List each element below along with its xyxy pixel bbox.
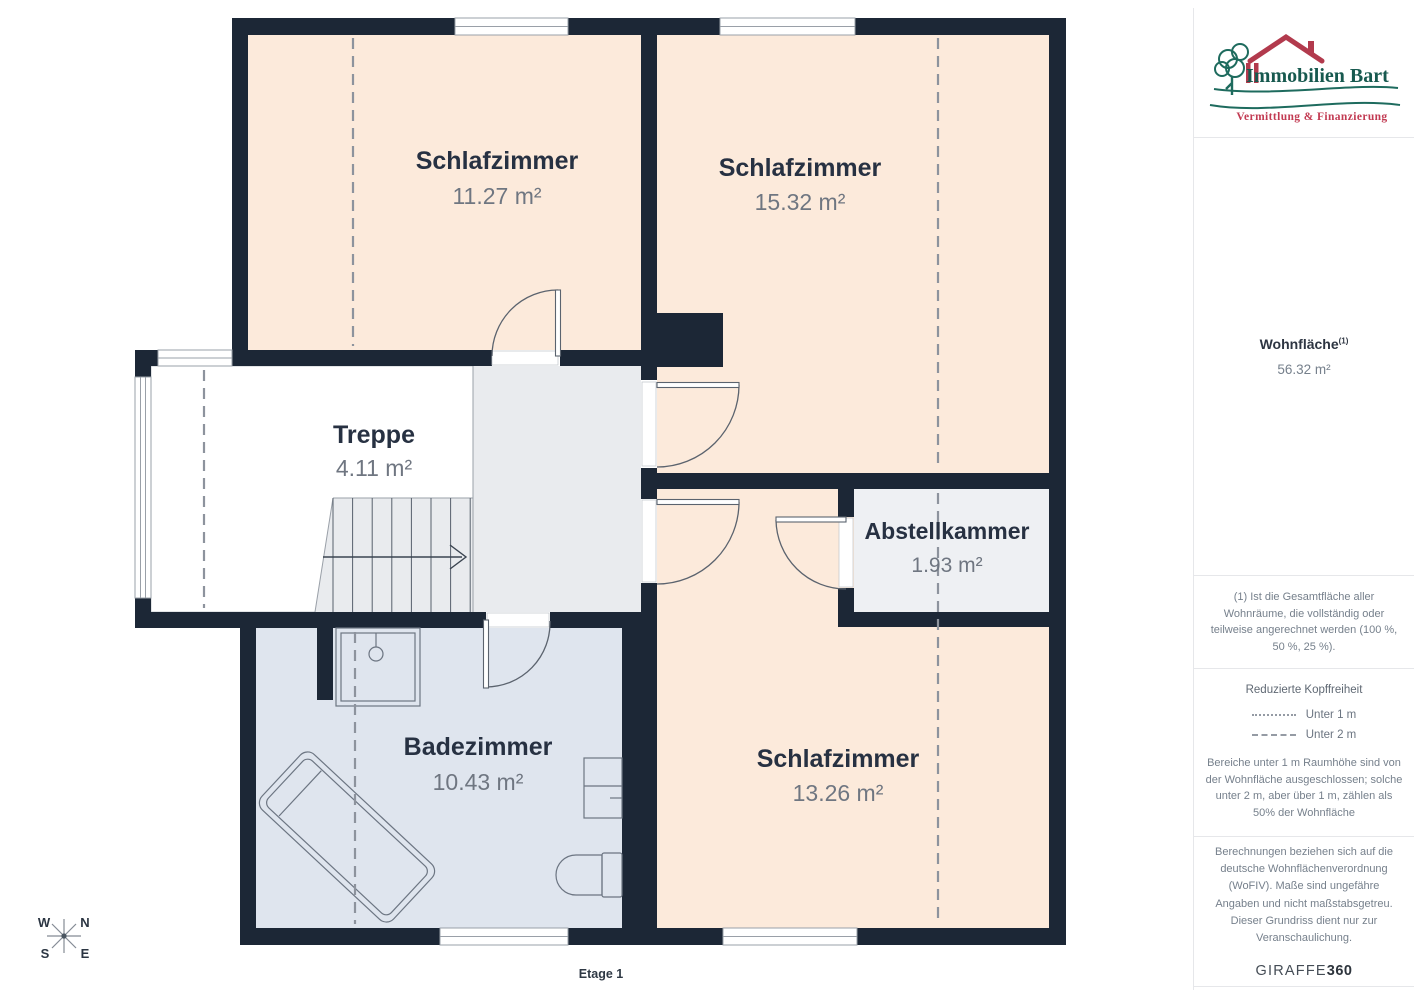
agency-logo-card: Immobilien Bart Vermittlung & Finanzieru… xyxy=(1194,8,1414,138)
legend-under-2m-label: Unter 2 m xyxy=(1306,729,1357,741)
label-bedroom-topleft-name: Schlafzimmer xyxy=(416,147,579,175)
window-stairs-left xyxy=(135,377,151,598)
logo-tree-icon xyxy=(1215,44,1248,95)
compass-east: E xyxy=(81,946,90,961)
agency-logo: Immobilien Bart Vermittlung & Finanzieru… xyxy=(1202,21,1406,125)
label-storage-area: 1.93 m² xyxy=(911,554,982,577)
label-bathroom-name: Badezimmer xyxy=(404,733,553,761)
floorplan-page: Schlafzimmer 11.27 m² Schlafzimmer 15.32… xyxy=(0,0,1414,1000)
brand-suffix: 360 xyxy=(1327,963,1353,979)
window-top-left xyxy=(455,18,568,35)
window-top-right xyxy=(720,18,855,35)
room-bedroom-topleft xyxy=(248,35,641,350)
disclaimer-text: Berechnungen beziehen sich auf die deuts… xyxy=(1206,844,1402,946)
label-bedroom-bottom-area: 13.26 m² xyxy=(793,780,884,806)
living-area-label-text: Wohnfläche xyxy=(1260,336,1339,352)
brand-name: GIRAFFE xyxy=(1256,963,1327,979)
label-bedroom-bottom-name: Schlafzimmer xyxy=(757,745,920,773)
logo-subtitle: Vermittlung & Finanzierung xyxy=(1236,111,1387,123)
living-area-card: Wohnfläche(1) 56.32 m² xyxy=(1194,138,1414,576)
floor-label: Etage 1 xyxy=(579,967,624,981)
label-storage-name: Abstellkammer xyxy=(865,518,1030,544)
window-bottom-bath xyxy=(440,928,568,945)
room-bedroom-topright xyxy=(657,35,1049,473)
hallway-landing xyxy=(473,366,641,612)
logo-grass-swoosh xyxy=(1210,102,1400,107)
window-bottom-bedroom xyxy=(723,928,857,945)
legend-under-2m: Unter 2 m xyxy=(1252,729,1357,741)
room-storage xyxy=(854,489,1049,612)
label-bedroom-topright-name: Schlafzimmer xyxy=(719,154,882,182)
headroom-legend-card: Reduzierte Kopffreiheit Unter 1 m Unter … xyxy=(1194,669,1414,837)
dashed-line-icon xyxy=(1252,734,1296,736)
headroom-title: Reduzierte Kopffreiheit xyxy=(1246,684,1363,696)
living-area-label: Wohnfläche(1) xyxy=(1260,336,1349,352)
compass-south: S xyxy=(41,946,50,961)
headroom-note: Bereiche unter 1 m Raumhöhe sind von der… xyxy=(1204,755,1404,821)
label-bathroom-area: 10.43 m² xyxy=(433,769,524,795)
floorplan-drawing: Schlafzimmer 11.27 m² Schlafzimmer 15.32… xyxy=(0,0,1193,1000)
compass-north: N xyxy=(80,915,89,930)
living-area-footnote-marker: (1) xyxy=(1339,336,1349,345)
giraffe360-logo: GIRAFFE360 xyxy=(1256,963,1353,979)
legend-under-1m: Unter 1 m xyxy=(1252,709,1357,721)
footnote-card: (1) Ist die Gesamtfläche aller Wohnräume… xyxy=(1194,576,1414,669)
window-stairs-top xyxy=(158,350,232,366)
compass-icon: W N S E xyxy=(38,915,90,961)
disclaimer-card: Berechnungen beziehen sich auf die deuts… xyxy=(1194,837,1414,987)
dotted-line-icon xyxy=(1252,714,1296,716)
compass-west: W xyxy=(38,915,51,930)
label-stairs-area: 4.11 m² xyxy=(336,455,413,481)
label-bedroom-topright-area: 15.32 m² xyxy=(755,189,846,215)
logo-underline xyxy=(1214,86,1398,91)
logo-title: Immobilien Bart xyxy=(1246,65,1389,87)
label-stairs-name: Treppe xyxy=(333,421,415,449)
label-bedroom-topleft-area: 11.27 m² xyxy=(452,183,541,209)
living-area-value: 56.32 m² xyxy=(1277,362,1330,377)
info-sidebar: Immobilien Bart Vermittlung & Finanzieru… xyxy=(1193,8,1414,990)
legend-under-1m-label: Unter 1 m xyxy=(1306,709,1357,721)
footnote-text: (1) Ist die Gesamtfläche aller Wohnräume… xyxy=(1210,589,1398,655)
stair-flight-area xyxy=(315,498,473,612)
